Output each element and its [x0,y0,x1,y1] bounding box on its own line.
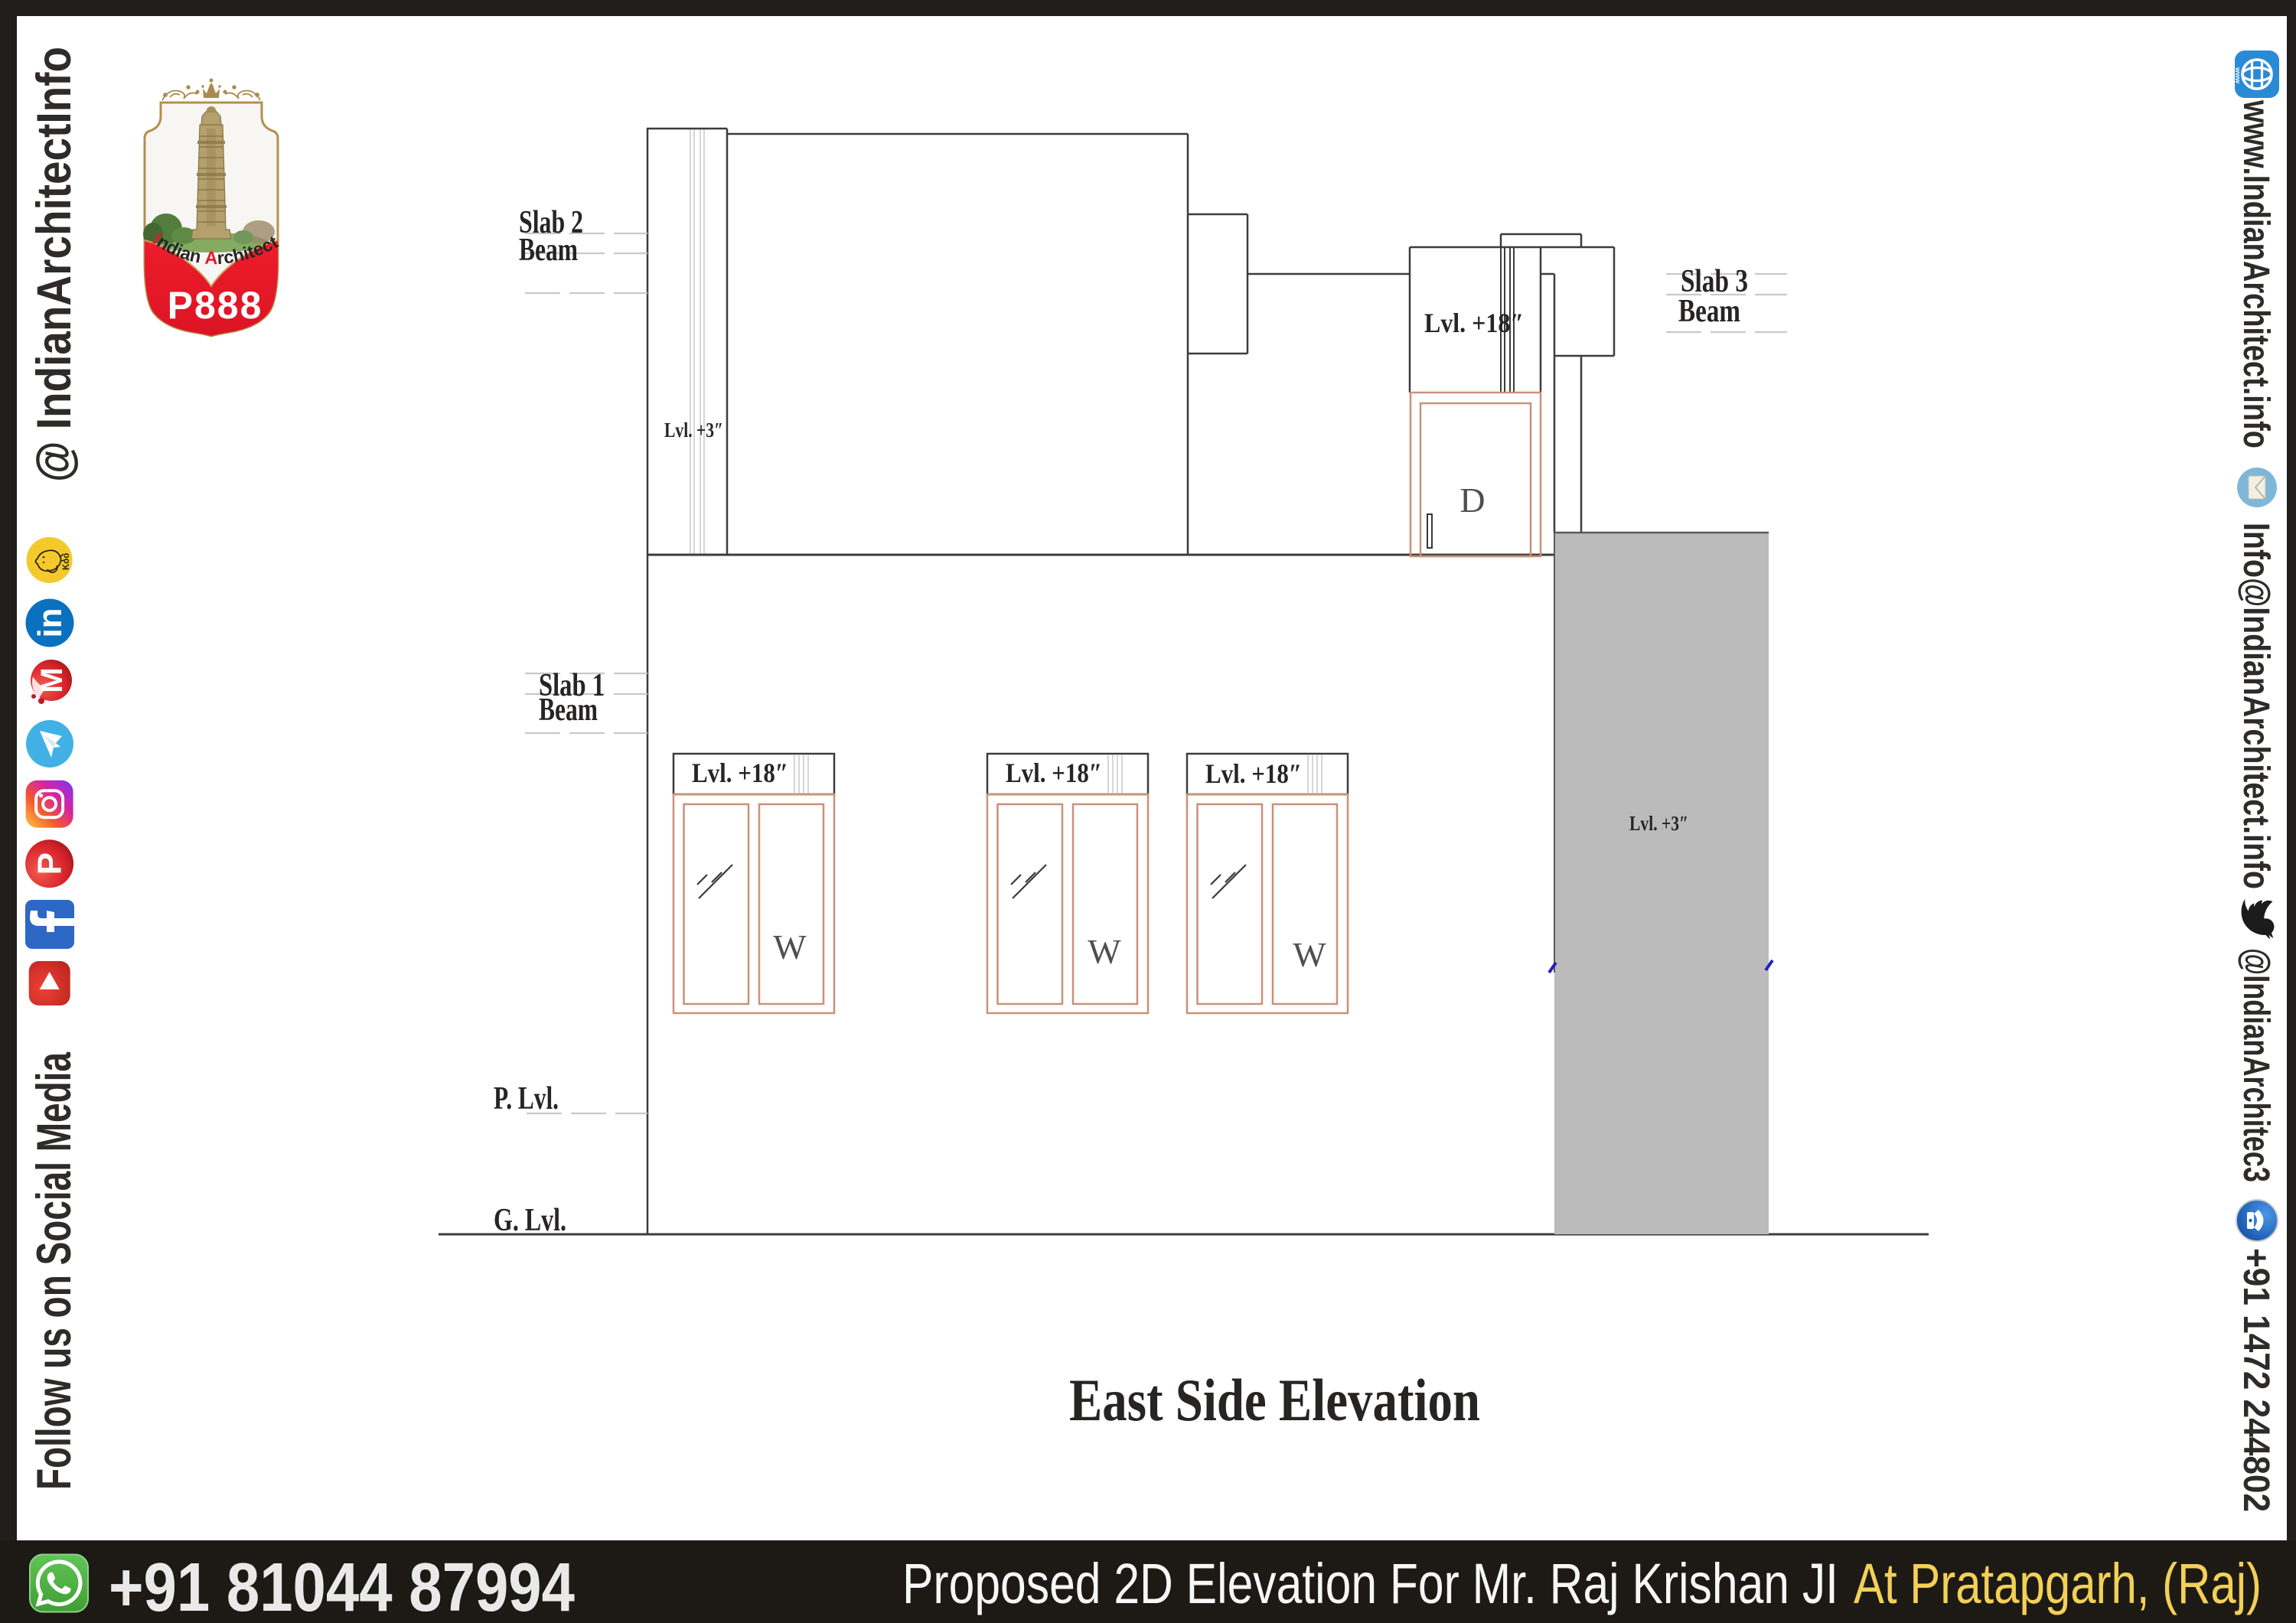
svg-text:Info@IndianArchitect.info: Info@IndianArchitect.info [2236,523,2276,889]
svg-text:Lvl. +18″: Lvl. +18″ [1424,308,1524,338]
svg-text:Beam: Beam [519,233,578,268]
svg-text:Beam: Beam [539,693,598,728]
svg-text:Beam: Beam [1678,294,1740,329]
svg-text:East Side Elevation: East Side Elevation [1069,1367,1480,1433]
svg-text:www.IndianArchitect.info: www.IndianArchitect.info [2236,99,2276,448]
svg-text:W: W [773,927,807,966]
svg-text:+91 1472 244802: +91 1472 244802 [2236,1248,2276,1512]
svg-text:P: P [31,852,69,875]
svg-text:Koo: Koo [62,553,71,570]
svg-text:G. Lvl.: G. Lvl. [494,1203,566,1238]
svg-text:Follow us on Social Media: Follow us on Social Media [28,1051,81,1490]
svg-text:@ IndianArchitectInfo: @ IndianArchitectInfo [28,47,81,482]
svg-text:Lvl. +3″: Lvl. +3″ [1629,812,1688,835]
svg-text:P. Lvl.: P. Lvl. [494,1081,559,1116]
svg-text:W: W [1088,932,1121,971]
svg-text:P888: P888 [168,284,263,327]
svg-text:www: www [2234,67,2242,84]
svg-text:Lvl. +18″: Lvl. +18″ [1006,758,1102,788]
svg-text:Lvl. +18″: Lvl. +18″ [1205,758,1302,789]
svg-text:W: W [1293,935,1326,974]
svg-text:M: M [35,667,69,693]
svg-text:in: in [31,608,69,637]
svg-text:D: D [1459,481,1485,520]
svg-text:+91 81044 87994: +91 81044 87994 [109,1550,575,1623]
svg-text:Lvl. +3″: Lvl. +3″ [664,419,723,442]
svg-text:Lvl. +18″: Lvl. +18″ [692,758,788,788]
svg-text:Proposed 2D Elevation For Mr.: Proposed 2D Elevation For Mr. Raj Krisha… [902,1552,1838,1615]
svg-text:@IndianArchitec3: @IndianArchitec3 [2236,948,2276,1182]
svg-text:At Pratapgarh, (Raj): At Pratapgarh, (Raj) [1854,1552,2262,1615]
